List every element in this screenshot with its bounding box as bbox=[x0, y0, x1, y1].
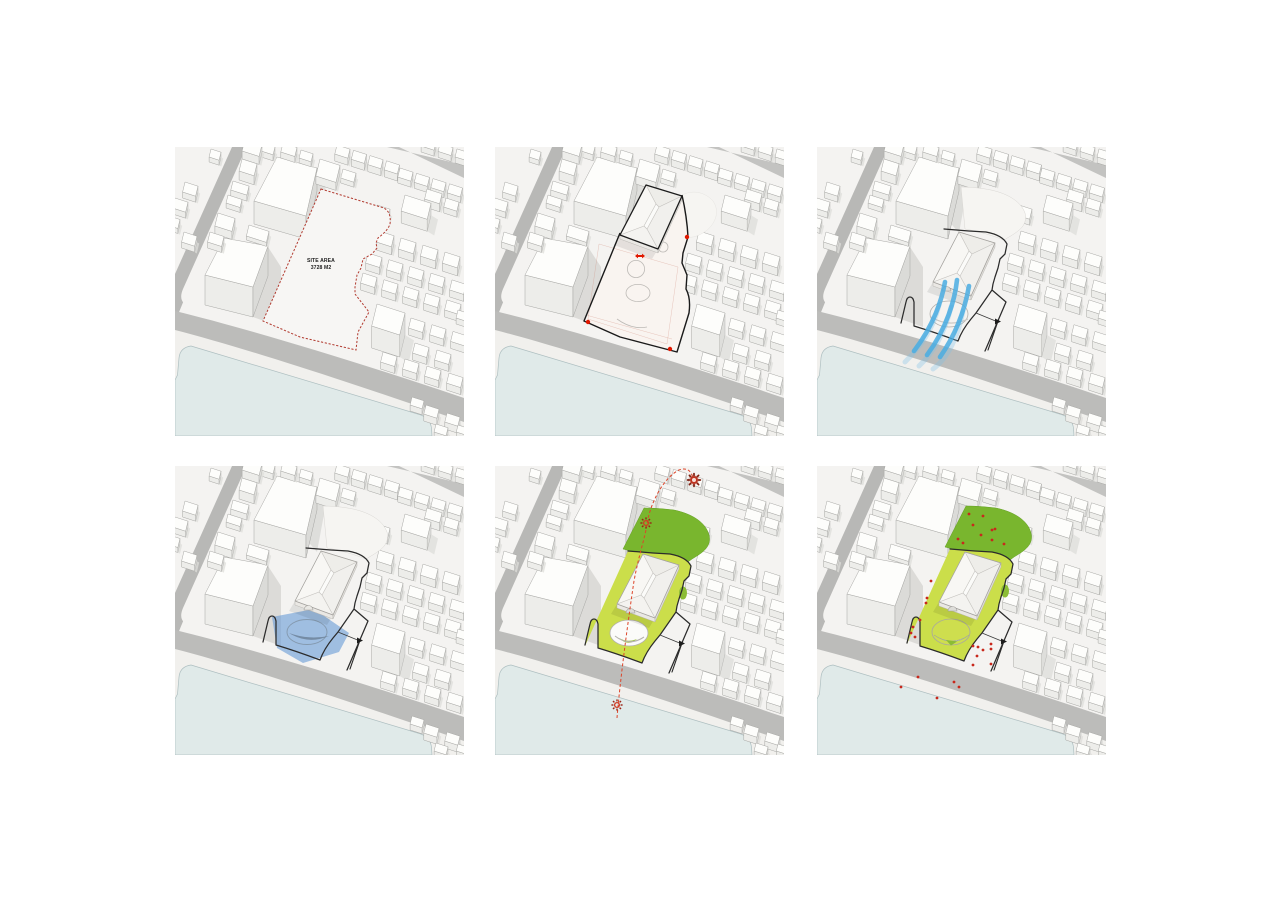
svg-text:3728 M2: 3728 M2 bbox=[311, 265, 332, 271]
svg-text:SITE AREA: SITE AREA bbox=[307, 258, 335, 264]
